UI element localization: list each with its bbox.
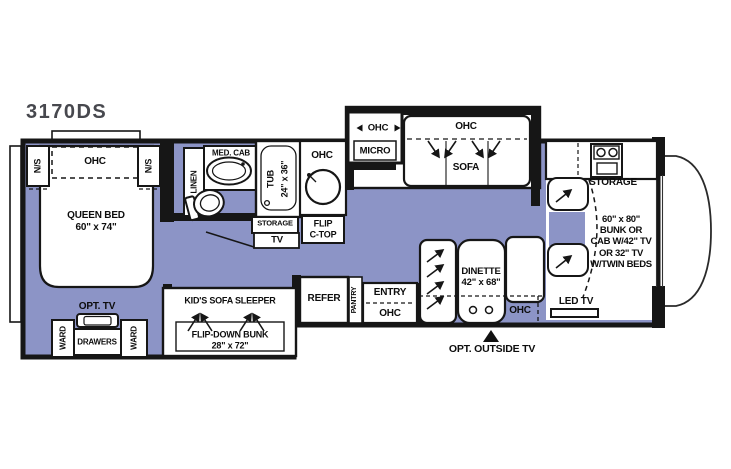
rear-bumper (10, 146, 21, 322)
bunk-option-label: 60" x 80" BUNK OR CAB W/42" TV OR 32" TV… (590, 214, 652, 270)
opt-outside-tv-label: OPT. OUTSIDE TV (449, 343, 535, 355)
opt-tv-label: OPT. TV (79, 301, 115, 313)
flip-ctop-label: FLIP C-TOP (310, 218, 337, 239)
ward-right-label: WARD (129, 326, 138, 350)
ec-hatch-top (361, 106, 387, 113)
dinette-ohc-label: OHC (509, 305, 531, 317)
nightstand-left-label: N/S (33, 159, 44, 173)
model-number: 3170DS (26, 101, 107, 124)
linen-label: LINEN (189, 170, 198, 193)
bath-tv-label: TV (271, 234, 283, 245)
front-cap-outline (658, 156, 711, 306)
entertainment-center (348, 106, 402, 170)
ec-ohc-label: OHC (368, 122, 389, 133)
ward-left-label: WARD (58, 326, 67, 350)
dinette-bench-left (420, 240, 456, 323)
galley-ohc-label: OHC (311, 150, 333, 162)
vanity-faucet (241, 162, 245, 166)
micro-label: MICRO (360, 145, 391, 156)
rv-floorplan: 3170DS N/S OHC N/S QUEEN BED 60" x 74" O… (0, 0, 731, 469)
body-right-wall-bottom (652, 286, 665, 328)
outside-tv-marker-icon (483, 330, 499, 342)
bath-storage-label: STORAGE (257, 220, 293, 229)
tub-label: TUB (266, 170, 277, 188)
entry-ohc-label: OHC (379, 308, 401, 320)
flip-down-bunk-label: FLIP-DOWN BUNK 28" x 72" (192, 329, 269, 350)
driver-seat (548, 178, 588, 210)
sofa-label: SOFA (453, 162, 479, 174)
bedroom-ohc-label: OHC (84, 156, 106, 168)
pantry-label: PANTRY (351, 287, 359, 314)
tub-size-label: 24" x 36" (280, 161, 291, 198)
queen-bed-label: QUEEN BED 60" x 74" (67, 210, 125, 234)
galley-sink (306, 170, 340, 204)
kids-sleeper-label: KID'S SOFA SLEEPER (184, 296, 275, 307)
refer-label: REFER (308, 293, 341, 305)
dinette-label: DINETTE 42" x 68" (461, 266, 500, 288)
dinette-bench-right (506, 237, 544, 302)
opt-tv-screen (84, 317, 111, 326)
med-cab-label: MED. CAB (212, 148, 250, 157)
nightstand-right-label: N/S (144, 159, 155, 173)
kitchen (546, 141, 657, 179)
slide-right-wall (531, 106, 540, 206)
bedroom-bath-wall (160, 141, 174, 222)
passenger-seat (548, 244, 588, 276)
sofa-ohc-label: OHC (455, 121, 477, 133)
drawers-label: DRAWERS (77, 337, 117, 346)
cab-storage-label: STORAGE (589, 177, 637, 189)
cab-aisle (549, 212, 585, 246)
ec-hatch-bottom (352, 164, 396, 170)
entry-label: ENTRY (374, 287, 407, 299)
led-tv-shape (551, 309, 598, 317)
led-tv-label: LED TV (559, 296, 593, 308)
